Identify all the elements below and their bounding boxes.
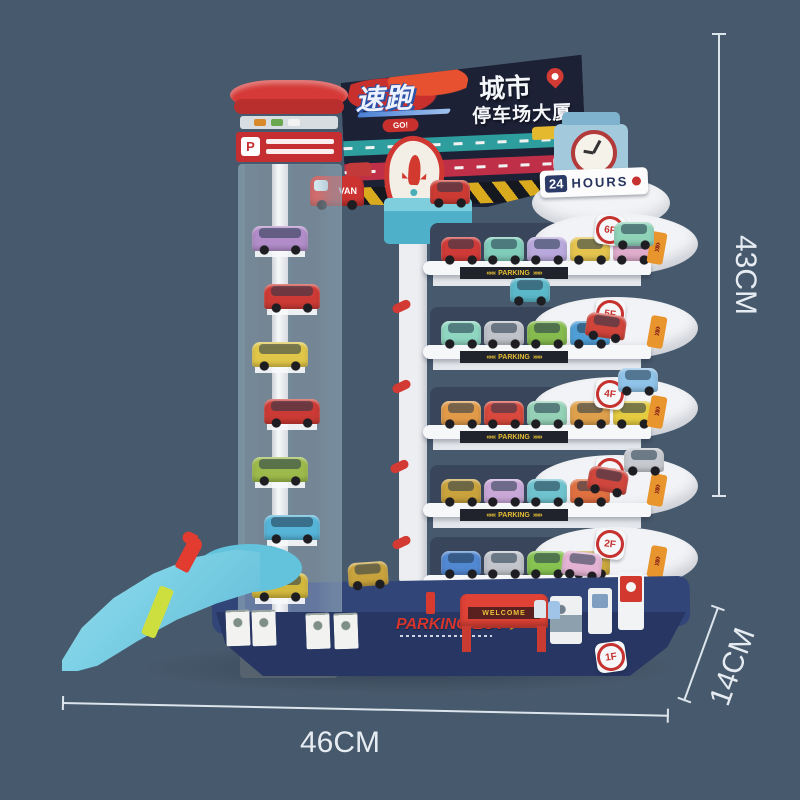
width-dimension-line xyxy=(62,702,669,717)
welcome-banner: WELCOME xyxy=(468,607,540,619)
banner-arrows-left: ««« xyxy=(486,434,495,441)
sticker-chip xyxy=(271,119,283,126)
toy-car xyxy=(618,368,658,392)
banner-text-bar xyxy=(266,149,334,154)
dimension-tick xyxy=(62,696,64,710)
toy-car xyxy=(264,515,320,540)
toy-car xyxy=(252,457,308,482)
logo-sub-text: GO! xyxy=(382,118,419,133)
parking-banner: ««« PARKING »»» xyxy=(460,431,568,443)
base-car xyxy=(347,561,389,588)
accessory-bottle xyxy=(534,600,546,618)
ramp-car xyxy=(618,368,658,392)
toy-car xyxy=(527,321,567,345)
toy-car xyxy=(527,401,567,425)
banner-arrows-left: ««« xyxy=(486,270,495,277)
people-sticker xyxy=(305,613,330,650)
banner-arrows-right: »»» xyxy=(533,434,542,441)
banner-text-bar xyxy=(266,139,334,144)
banner-arrows-right: »»» xyxy=(533,270,542,277)
accessory-bottle xyxy=(548,601,560,619)
floor-badge-1f: 1F xyxy=(594,640,628,674)
elevator-sticker-band xyxy=(240,116,338,129)
product-photo-scene: 43CM 14CM 46CM 速跑 GO! 城市 停车场大厦 24 HOUR xyxy=(0,0,800,800)
location-pin-icon xyxy=(543,64,567,88)
garage-level-6: ««« PARKING »»» 6F »» xyxy=(415,215,700,295)
toy-car xyxy=(430,180,470,204)
toy-car xyxy=(484,551,524,575)
elevator-cap xyxy=(230,80,348,110)
width-dimension-label: 46CM xyxy=(275,726,405,760)
toy-car xyxy=(585,311,628,340)
dimension-tick xyxy=(712,33,726,35)
banner-label: PARKING xyxy=(498,354,530,361)
ramp-car xyxy=(561,550,603,578)
height-dimension-line xyxy=(718,33,720,497)
toy-car xyxy=(527,479,567,503)
toy-car xyxy=(264,399,320,424)
hours-sign-number: 24 xyxy=(545,175,568,193)
toy-car xyxy=(484,321,524,345)
ramp-car xyxy=(624,448,664,472)
dimension-tick xyxy=(677,697,691,704)
banner-arrows-left: ««« xyxy=(486,512,495,519)
gas-pump xyxy=(588,588,612,634)
24-hours-sign: 24 HOURS xyxy=(540,167,649,198)
dimension-tick xyxy=(712,495,726,497)
banner-arrows-left: ««« xyxy=(486,354,495,361)
banner-label: PARKING xyxy=(498,512,530,519)
toy-car xyxy=(484,479,524,503)
launch-ramp xyxy=(62,528,272,673)
toy-car xyxy=(264,284,320,309)
hours-sign-text: HOURS xyxy=(571,174,628,191)
toy-car xyxy=(624,448,664,472)
banner-label: PARKING xyxy=(498,270,530,277)
toy-car xyxy=(484,401,524,425)
ramp-car xyxy=(585,311,628,340)
toy-car xyxy=(441,401,481,425)
parking-banner: ««« PARKING »»» xyxy=(460,509,568,521)
ramp-car xyxy=(510,278,550,302)
rocket-icon xyxy=(408,155,422,186)
sticker-chip xyxy=(288,119,300,126)
gas-station-sign xyxy=(618,572,644,630)
gate-leg xyxy=(537,626,546,652)
dimension-tick xyxy=(711,605,725,612)
toy-car xyxy=(252,226,308,251)
hours-sign-dot-icon xyxy=(632,176,641,185)
banner-arrows-right: »»» xyxy=(533,354,542,361)
sticker-chip xyxy=(254,119,266,126)
toy-car xyxy=(614,222,654,246)
garage-level-5: ««« PARKING »»» 5F »» xyxy=(415,299,700,379)
toy-car xyxy=(561,550,603,578)
ramp-car xyxy=(614,222,654,246)
toy-car xyxy=(441,479,481,503)
toy-car xyxy=(252,342,308,367)
depth-dimension-label: 14CM xyxy=(702,619,765,715)
toy-car xyxy=(484,237,524,261)
banner-arrows-right: »»» xyxy=(533,512,542,519)
toy-car xyxy=(441,321,481,345)
height-dimension-label: 43CM xyxy=(728,230,762,320)
toy-car xyxy=(347,561,389,588)
red-beacon xyxy=(426,592,435,614)
dimension-tick xyxy=(667,709,669,723)
roof-car xyxy=(430,180,470,204)
toy-car xyxy=(441,551,481,575)
banner-label: PARKING xyxy=(498,434,530,441)
rocket-sign-dot xyxy=(410,189,417,196)
parking-banner: ««« PARKING »»» xyxy=(460,351,568,363)
elevator-banner: P xyxy=(236,132,342,162)
elevator-tower: P xyxy=(228,80,350,605)
gate-leg xyxy=(462,626,471,652)
toy-car xyxy=(510,278,550,302)
toy-car xyxy=(441,237,481,261)
toy-car xyxy=(527,237,567,261)
people-sticker xyxy=(333,613,358,650)
parking-p-badge: P xyxy=(241,137,260,156)
